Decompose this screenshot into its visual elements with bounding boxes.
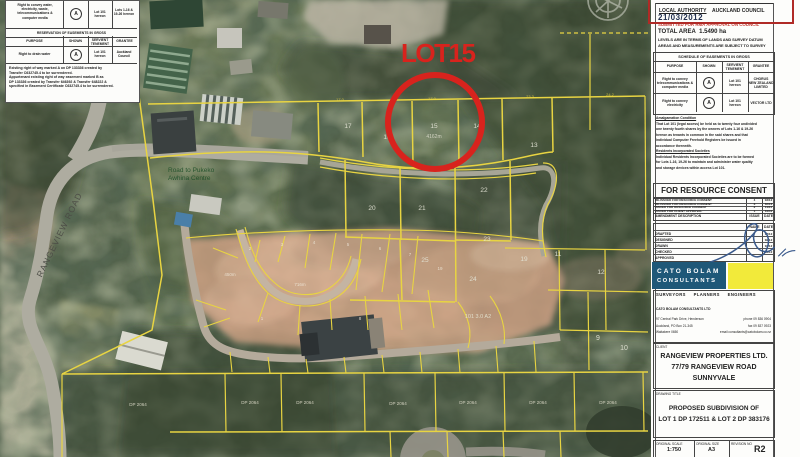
svg-text:DP 2064: DP 2064 — [599, 400, 617, 405]
svg-text:20: 20 — [368, 205, 376, 212]
svg-text:17.0: 17.0 — [428, 96, 437, 101]
svg-text:DP 2064: DP 2064 — [241, 400, 259, 405]
svg-text:19: 19 — [437, 266, 443, 271]
svg-text:450m: 450m — [224, 272, 236, 277]
svg-text:17: 17 — [344, 123, 352, 130]
svg-text:25: 25 — [421, 257, 429, 264]
svg-text:101 3.0 A2: 101 3.0 A2 — [465, 314, 491, 320]
svg-text:21: 21 — [418, 205, 426, 212]
svg-text:15: 15 — [430, 123, 438, 130]
svg-text:10: 10 — [620, 345, 628, 352]
svg-text:DP 2064: DP 2064 — [389, 401, 407, 406]
svg-text:DP 2064: DP 2064 — [459, 400, 477, 405]
svg-text:Awhina Centre: Awhina Centre — [168, 175, 211, 182]
svg-text:Road to Pukeko: Road to Pukeko — [168, 167, 215, 174]
svg-text:22: 22 — [480, 187, 488, 194]
svg-text:DP 2064: DP 2064 — [296, 400, 314, 405]
svg-text:4162m: 4162m — [426, 134, 441, 140]
svg-text:DP 2064: DP 2064 — [129, 402, 147, 407]
svg-text:23.3: 23.3 — [526, 94, 535, 99]
svg-text:9: 9 — [596, 335, 600, 342]
svg-text:19: 19 — [520, 256, 528, 263]
svg-text:17.0: 17.0 — [336, 97, 345, 102]
svg-text:11: 11 — [555, 251, 562, 258]
svg-text:24: 24 — [469, 276, 477, 283]
svg-text:13: 13 — [530, 142, 538, 149]
svg-text:716m: 716m — [294, 282, 306, 287]
svg-text:DP 2064: DP 2064 — [529, 400, 547, 405]
svg-text:24.2: 24.2 — [606, 92, 615, 97]
svg-text:23: 23 — [483, 236, 491, 243]
svg-text:12: 12 — [597, 269, 605, 276]
svg-text:LOT15: LOT15 — [401, 38, 475, 68]
